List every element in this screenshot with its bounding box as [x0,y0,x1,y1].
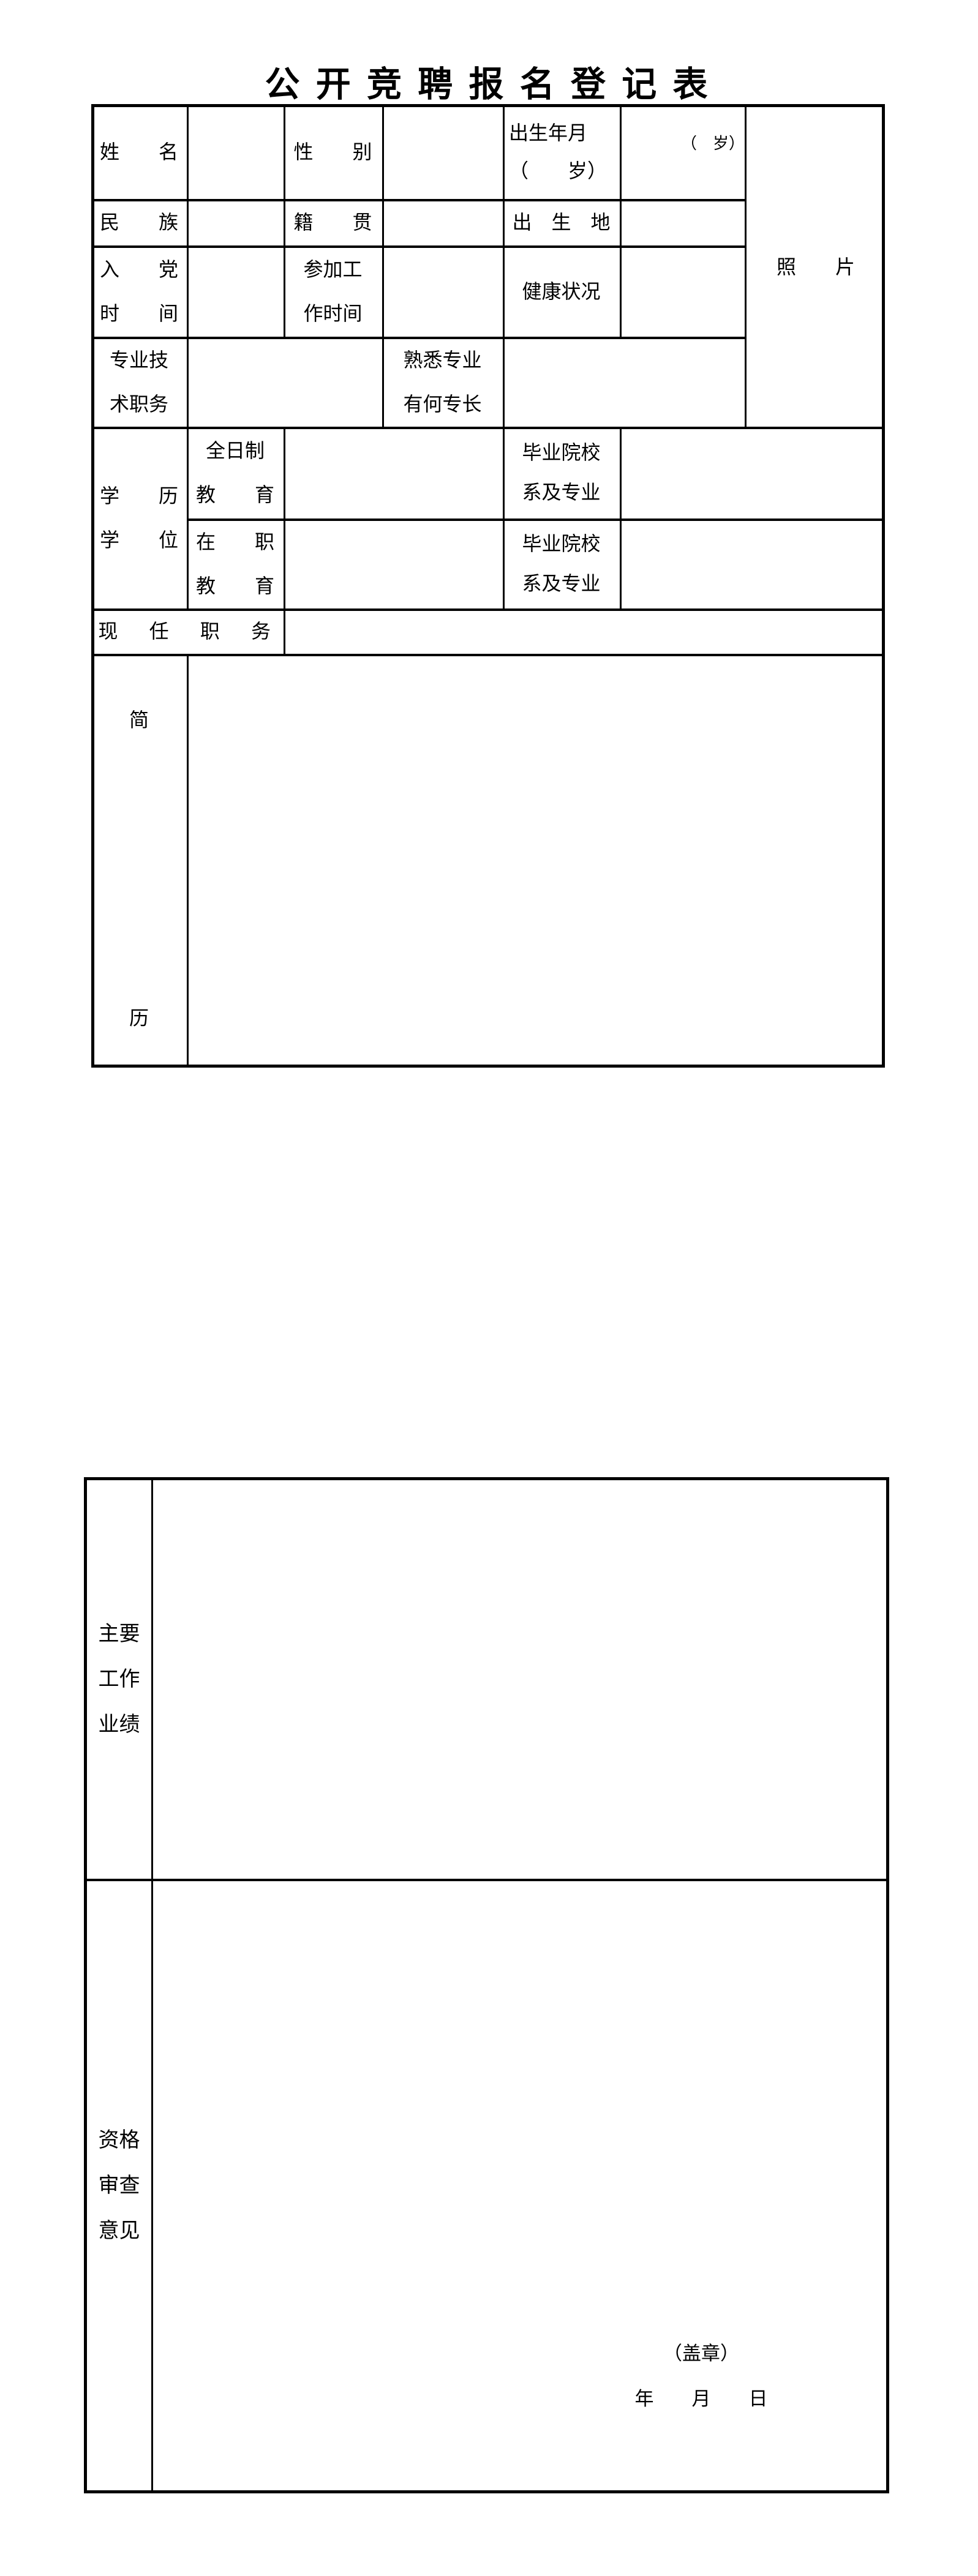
birth-date-label-line1: 出生年月 [509,114,587,152]
specialty-label-line1: 熟悉专业 [403,338,481,382]
birth-date-value-cell[interactable]: （ 岁） [620,104,745,199]
table2-border-right [886,1477,889,2493]
fulltime-school-label-line2: 系及专业 [522,473,600,512]
fulltime-school-value-cell[interactable] [620,427,885,519]
party-time-label: 入 党 时 间 [91,245,187,337]
review-label-line2: 审查 [99,2163,140,2209]
onjob-edu-label: 在 职 教 育 [187,519,284,608]
onjob-edu-label-line2: 教 育 [196,564,274,608]
specialty-label: 熟悉专业 有何专长 [382,337,503,427]
prof-title-label-line1: 专业技 [110,338,168,382]
fulltime-edu-label: 全日制 教 育 [187,427,284,519]
birthplace-label: 出 生 地 [503,199,620,245]
registration-form-page: 公 开 竞 聘 报 名 登 记 表 姓 名 性 别 出生年月 （ 岁） （ 岁）… [0,0,978,2576]
resume-label: 简 历 [91,654,187,1065]
edu-degree-label-line1: 学 历 [100,474,178,518]
achievements-label-line3: 业绩 [99,1702,140,1748]
work-time-label-line2: 作时间 [303,291,362,335]
native-place-value-cell[interactable] [382,199,503,245]
fulltime-school-label-line1: 毕业院校 [522,433,600,473]
resume-label-bottom: 历 [129,996,149,1040]
achievements-label: 主要 工作 业绩 [87,1480,151,1879]
onjob-edu-label-line1: 在 职 [196,520,274,564]
specialty-label-line2: 有何专长 [403,382,481,426]
name-value-cell[interactable] [187,104,284,199]
age-hint: （ 岁） [681,122,745,166]
edu-degree-label: 学 历 学 位 [91,427,187,608]
birth-date-label: 出生年月 （ 岁） [503,104,620,199]
work-time-label: 参加工 作时间 [284,245,382,337]
party-time-label-line2: 时 间 [100,291,178,335]
fulltime-edu-label-line2: 教 育 [196,473,274,517]
seal-hint: （盖章） [579,2337,824,2370]
fulltime-edu-value-cell[interactable] [284,427,503,519]
ethnicity-label: 民 族 [91,199,187,245]
prof-title-label: 专业技 术职务 [91,337,187,427]
table1-border-bottom [91,1065,885,1068]
fulltime-edu-label-line1: 全日制 [206,429,265,473]
birth-date-label-line2: （ 岁） [509,152,607,190]
photo-cell[interactable]: 照 片 [747,104,885,429]
work-time-label-line1: 参加工 [303,247,362,291]
prof-title-label-line2: 术职务 [110,382,168,426]
review-label-line1: 资格 [99,2118,140,2163]
photo-label: 照 片 [777,245,855,289]
onjob-school-value-cell[interactable] [620,519,885,608]
onjob-school-label-line1: 毕业院校 [522,524,600,564]
gender-label: 性 别 [284,104,382,199]
page-title: 公 开 竞 聘 报 名 登 记 表 [91,58,885,105]
party-time-label-line1: 入 党 [100,247,178,291]
ethnicity-value-cell[interactable] [187,199,284,245]
specialty-value-cell[interactable] [503,337,745,427]
name-label: 姓 名 [91,104,187,199]
gender-value-cell[interactable] [382,104,503,199]
resume-value-cell[interactable] [187,654,885,1065]
party-time-value-cell[interactable] [187,245,284,337]
onjob-school-label: 毕业院校 系及专业 [503,519,620,608]
review-label: 资格 审查 意见 [87,1881,151,2490]
fulltime-school-label: 毕业院校 系及专业 [503,427,620,519]
native-place-label: 籍 贯 [284,199,382,245]
date-hint: 年 月 日 [579,2383,824,2416]
prof-title-value-cell[interactable] [187,337,382,427]
birthplace-value-cell[interactable] [620,199,745,245]
review-label-line3: 意见 [99,2209,140,2254]
resume-label-top: 简 [129,698,149,742]
work-time-value-cell[interactable] [382,245,503,337]
health-label: 健康状况 [503,245,620,337]
edu-degree-label-line2: 学 位 [100,518,178,562]
current-post-value-cell[interactable] [284,608,885,654]
achievements-label-line1: 主要 [99,1612,140,1657]
onjob-edu-value-cell[interactable] [284,519,503,608]
current-post-label: 现 任 职 务 [91,608,284,654]
onjob-school-label-line2: 系及专业 [522,564,600,604]
health-value-cell[interactable] [620,245,745,337]
table2-border-bottom [84,2490,889,2493]
achievements-value-cell[interactable] [153,1480,886,1879]
achievements-label-line2: 工作 [99,1657,140,1702]
